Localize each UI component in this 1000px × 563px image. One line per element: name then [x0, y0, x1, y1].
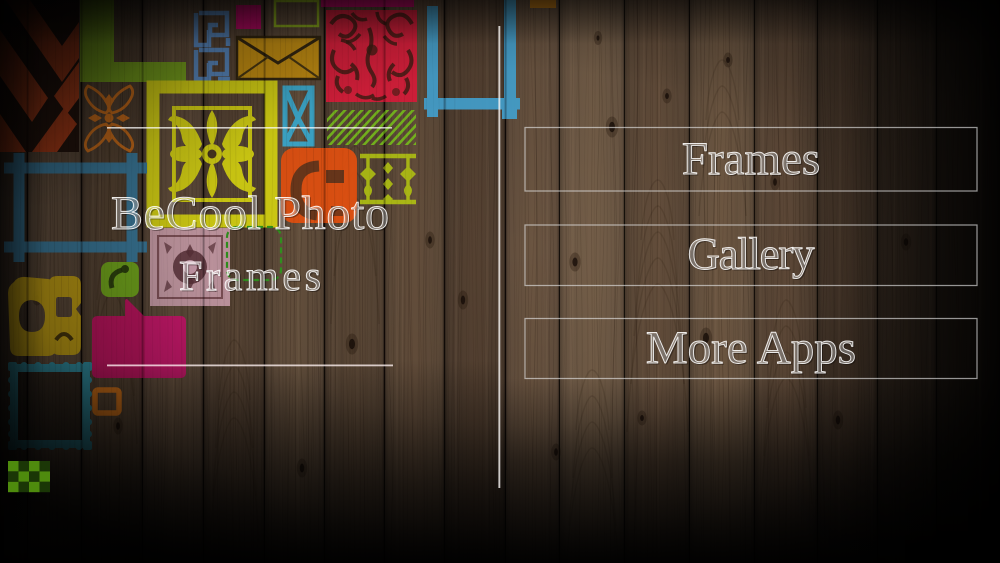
svg-text:Gallery: Gallery: [688, 229, 816, 279]
svg-text:More Apps: More Apps: [646, 322, 856, 374]
svg-text:BeCool Photo: BeCool Photo: [111, 187, 389, 240]
svg-text:Frames: Frames: [179, 254, 321, 300]
svg-text:Frames: Frames: [682, 133, 820, 185]
